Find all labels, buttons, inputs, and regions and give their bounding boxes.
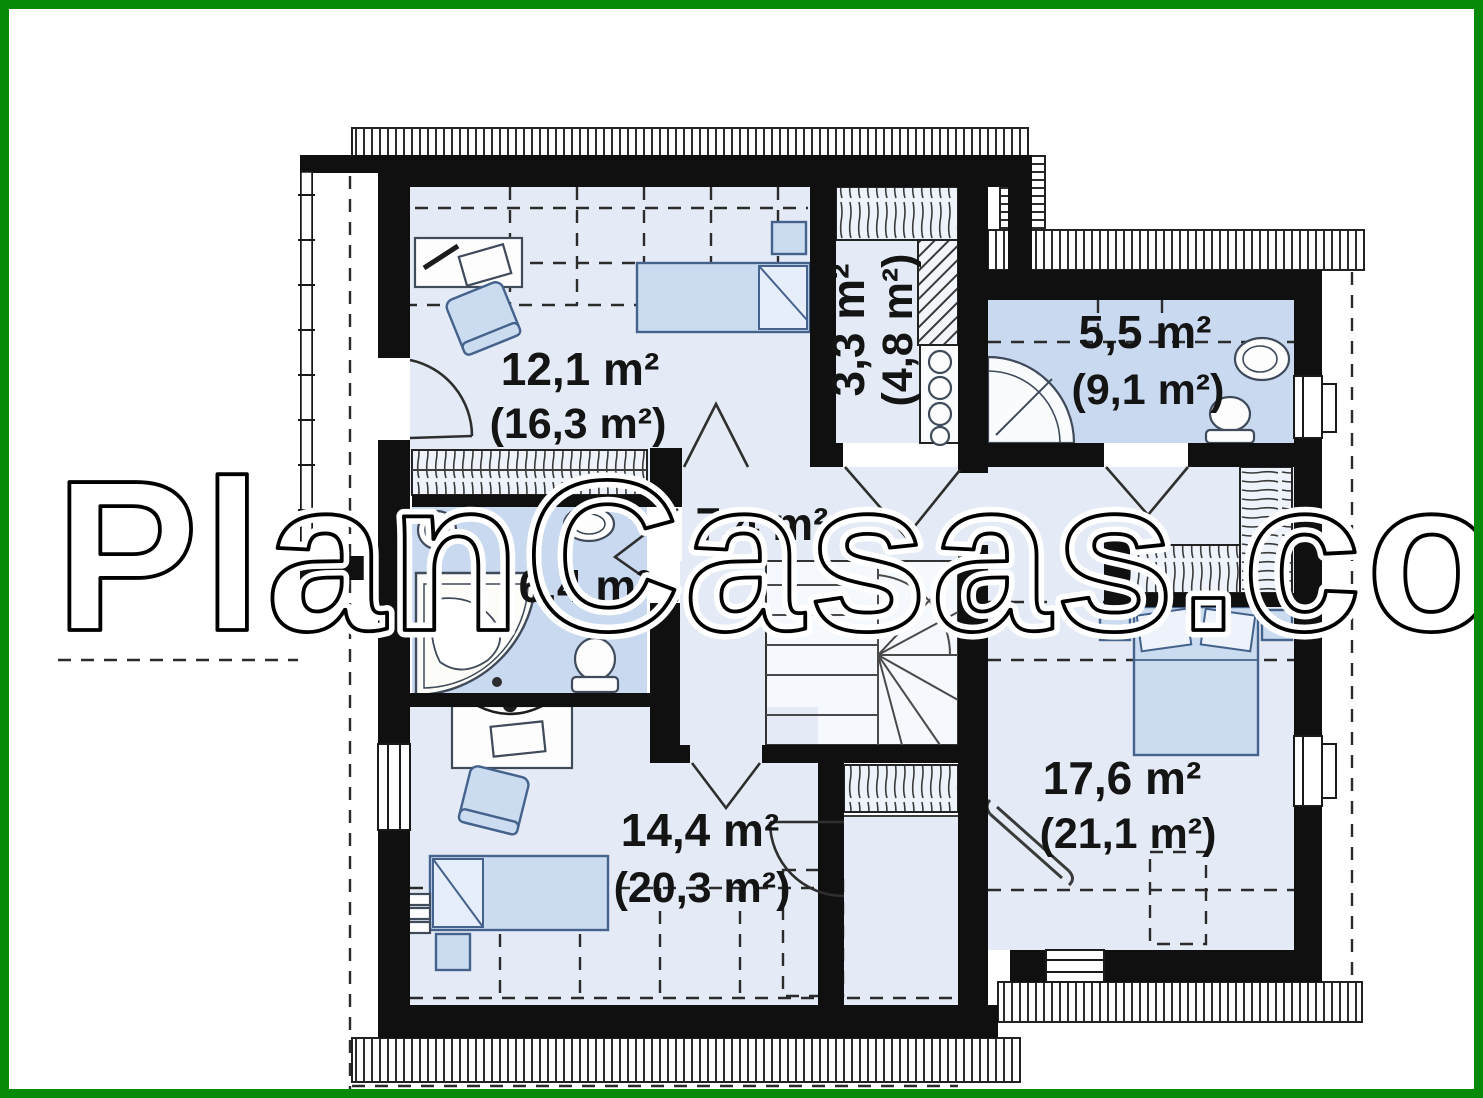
- wall-segment: [378, 155, 1032, 187]
- wall-segment: [676, 745, 690, 763]
- nightstand-icon: [436, 934, 470, 970]
- sink-icon: [1235, 338, 1289, 380]
- label-bathroom-top-right-total: (9,1 m²): [1072, 366, 1225, 414]
- label-bedroom-right-area: 17,6 m²: [1043, 752, 1202, 804]
- floor-plan-drawing: 12,1 m² (16,3 m²) 3,3 m² (4,8 m²) 5,5 m²…: [0, 0, 1483, 1098]
- label-bathroom-top-right-area: 5,5 m²: [1079, 306, 1212, 358]
- label-bedroom-bottom-left-area: 14,4 m²: [621, 804, 780, 856]
- wall-segment: [1104, 950, 1322, 982]
- wardrobe-icon: [836, 187, 958, 240]
- window: [1046, 950, 1104, 982]
- faucet-icon: [492, 677, 502, 687]
- wall-segment: [404, 693, 650, 707]
- attic-ladder-icon: [918, 240, 958, 345]
- wall-segment: [988, 270, 1322, 300]
- chair-icon: [458, 765, 530, 836]
- bed-icon: [637, 263, 810, 332]
- wall-segment: [818, 763, 844, 1005]
- deck-strip-bottom-right: [998, 982, 1362, 1022]
- wall-segment: [958, 187, 988, 473]
- deck-strip-right-top: [988, 230, 1364, 270]
- svg-text:PlanCasas.com: PlanCasas.com: [55, 435, 1483, 676]
- wall-segment: [762, 745, 963, 763]
- wall-segment: [378, 1005, 998, 1038]
- wardrobe-icon: [844, 765, 958, 812]
- chimney-icon: [920, 345, 960, 445]
- bed-icon: [430, 856, 608, 930]
- floor-plan-page: 12,1 m² (16,3 m²) 3,3 m² (4,8 m²) 5,5 m²…: [0, 0, 1483, 1098]
- floor-void: [844, 815, 958, 1005]
- label-bedroom-top-left-area: 12,1 m²: [501, 343, 660, 395]
- label-storage-closet: 3,3 m² (4,8 m²): [822, 254, 922, 407]
- window: [1294, 736, 1336, 806]
- wall-segment: [1008, 187, 1032, 270]
- wall-segment: [1294, 300, 1322, 376]
- keyboard-icon: [491, 721, 546, 756]
- watermark: PlanCasas.com PlanCasas.com: [55, 435, 1483, 676]
- deck-strip-bottom-left: [352, 1038, 1020, 1082]
- window: [1294, 376, 1336, 438]
- svg-text:(4,8 m²): (4,8 m²): [874, 254, 922, 407]
- label-bedroom-right-total: (21,1 m²): [1040, 810, 1217, 858]
- deck-strip-top: [352, 128, 1028, 156]
- radiator-icon: [408, 894, 430, 933]
- wall-segment: [1010, 950, 1046, 982]
- label-bedroom-bottom-left-total: (20,3 m²): [614, 864, 791, 912]
- nightstand-icon: [772, 222, 806, 254]
- svg-text:3,3 m²: 3,3 m²: [822, 264, 874, 397]
- window: [378, 744, 410, 830]
